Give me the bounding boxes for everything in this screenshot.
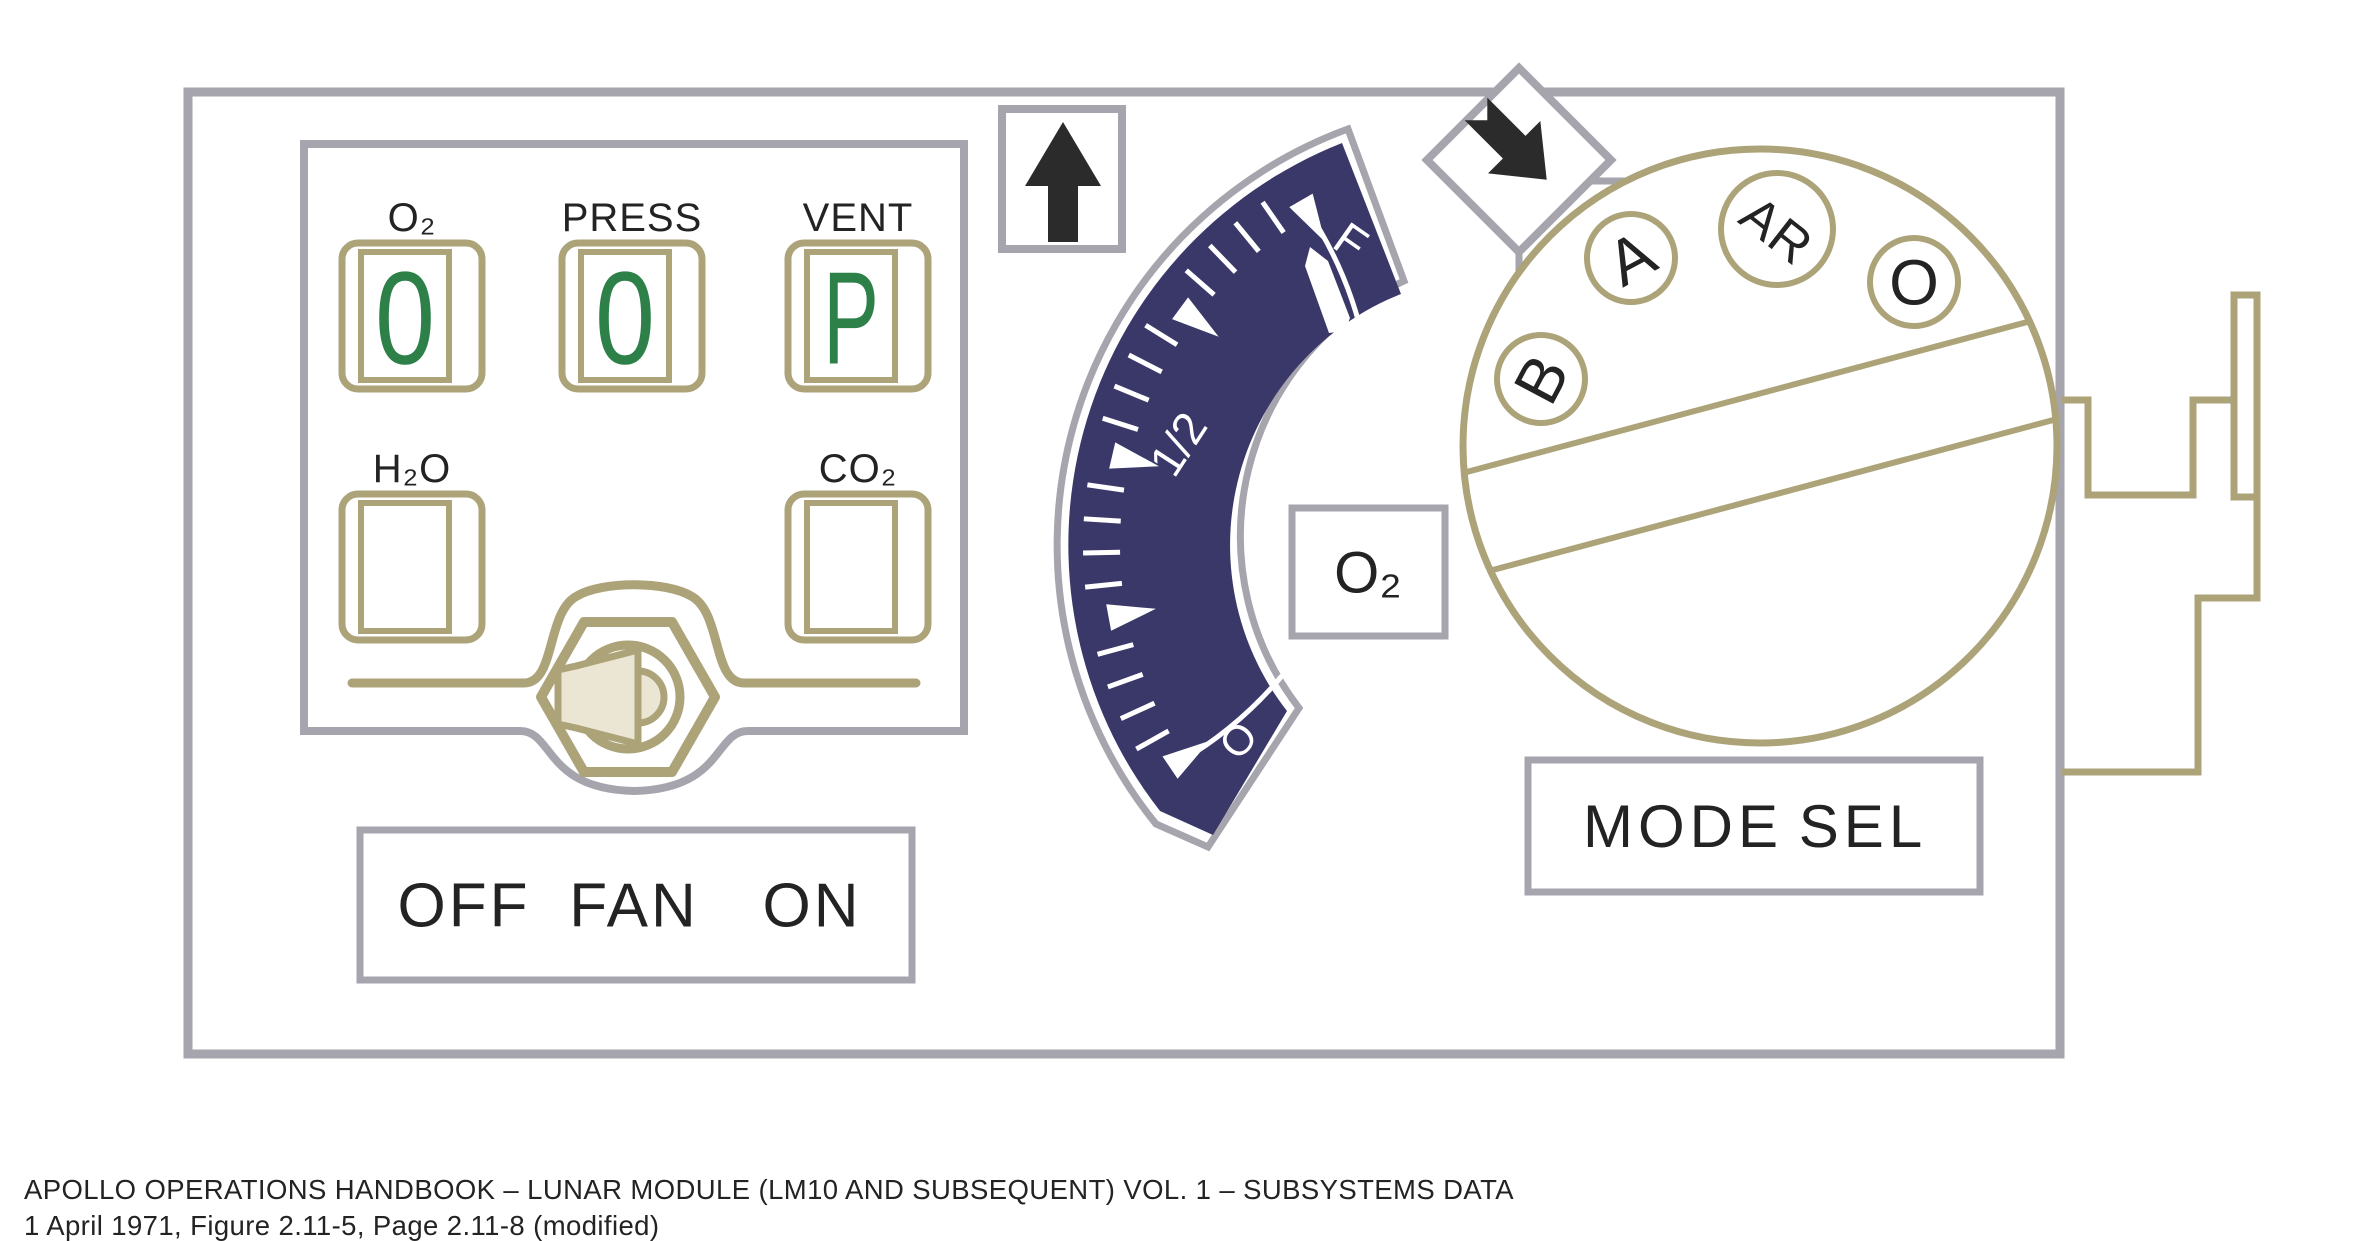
caption-line-2: 1 April 1971, Figure 2.11-5, Page 2.11-8… — [24, 1210, 659, 1241]
gauge-minor-tick — [1084, 519, 1121, 521]
o2-tag-label: O₂ — [1334, 540, 1402, 605]
indicator-window-h2o — [342, 494, 482, 640]
figure-page: O₂ PRESS VENT H₂O CO₂ 0 0 P OFF FAN ON — [0, 0, 2362, 1241]
indicator-value-press: 0 — [595, 245, 655, 392]
mode-sel-word-1: MODE — [1583, 793, 1783, 860]
dial-position-o: O — [1889, 246, 1939, 318]
indicator-window-o2: 0 — [342, 243, 482, 392]
indicator-value-vent: P — [823, 245, 879, 392]
speaker-horn — [558, 650, 638, 744]
speaker-dome — [638, 671, 664, 723]
indicator-label-press: PRESS — [562, 196, 703, 240]
indicator-value-o2: 0 — [375, 245, 435, 392]
fan-label-off: OFF — [398, 872, 531, 941]
gauge-minor-tick — [1083, 552, 1120, 553]
right-connector-bracket — [2062, 295, 2257, 772]
indicator-label-o2: O₂ — [388, 196, 437, 240]
indicator-window-co2 — [788, 494, 928, 640]
fan-switch-placard: OFF FAN ON — [360, 830, 912, 980]
indicator-label-h2o: H₂O — [373, 447, 452, 491]
mode-sel-word-2: SEL — [1799, 793, 1927, 860]
speaker-icon — [541, 622, 715, 772]
fan-label-fan: FAN — [569, 872, 699, 941]
fan-label-on: ON — [763, 872, 862, 941]
up-arrow-callout — [1002, 109, 1122, 249]
mode-selector-dial: B A AR O — [1463, 149, 2057, 743]
indicator-window-vent: P — [788, 243, 928, 392]
indicator-window-press: 0 — [562, 243, 702, 392]
o2-tag: O₂ — [1292, 508, 1445, 636]
caption-line-1: APOLLO OPERATIONS HANDBOOK – LUNAR MODUL… — [24, 1174, 1514, 1205]
indicator-label-vent: VENT — [803, 196, 914, 240]
mode-sel-placard: MODE SEL — [1528, 760, 1980, 892]
indicator-label-co2: CO₂ — [819, 447, 898, 491]
lm-ecs-panel-diagram: O₂ PRESS VENT H₂O CO₂ 0 0 P OFF FAN ON — [0, 0, 2362, 1241]
